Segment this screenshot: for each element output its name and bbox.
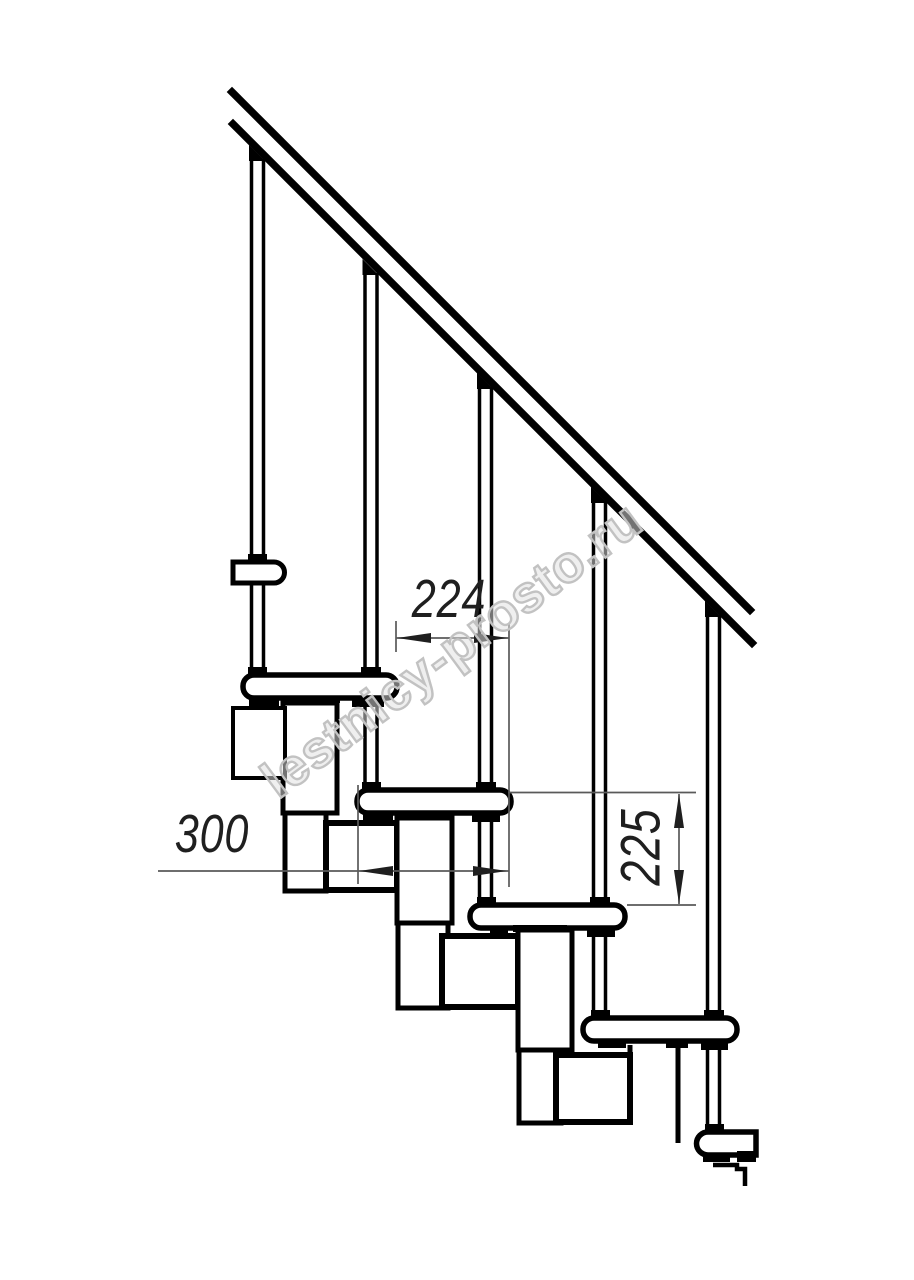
- tread-2: [357, 790, 511, 813]
- connector: [737, 1151, 756, 1162]
- connector: [476, 782, 496, 790]
- connector: [249, 697, 279, 707]
- connector: [363, 812, 393, 821]
- connector: [472, 813, 500, 822]
- tread-4: [583, 1018, 737, 1041]
- connector: [248, 554, 267, 562]
- dimension-value-300: 300: [175, 803, 249, 865]
- arrowhead-down: [674, 870, 684, 904]
- connector: [598, 1040, 626, 1048]
- connector: [705, 1124, 724, 1132]
- next-step-outline: [713, 1165, 745, 1186]
- baluster-5: [705, 601, 721, 1135]
- connector: [587, 928, 615, 937]
- connector: [703, 1153, 730, 1162]
- staircase-technical-drawing: 224 300 225 lestnicy-prosto.ru: [0, 0, 914, 1280]
- connector: [430, 812, 452, 819]
- connector: [666, 1040, 688, 1048]
- connector: [704, 1010, 724, 1018]
- connector: [513, 925, 567, 932]
- module-4: [630, 1045, 678, 1143]
- connector: [701, 1041, 728, 1050]
- connector: [477, 897, 496, 905]
- connector: [591, 1010, 610, 1018]
- upper-flight-tread-end: [233, 562, 285, 583]
- connector: [490, 926, 508, 934]
- connector: [362, 782, 381, 790]
- arrowhead-up: [674, 794, 684, 828]
- dimension-value-225: 225: [608, 808, 673, 885]
- connector: [590, 897, 610, 905]
- tread-3: [470, 905, 625, 928]
- baluster-1: [249, 145, 265, 678]
- connector: [248, 667, 267, 675]
